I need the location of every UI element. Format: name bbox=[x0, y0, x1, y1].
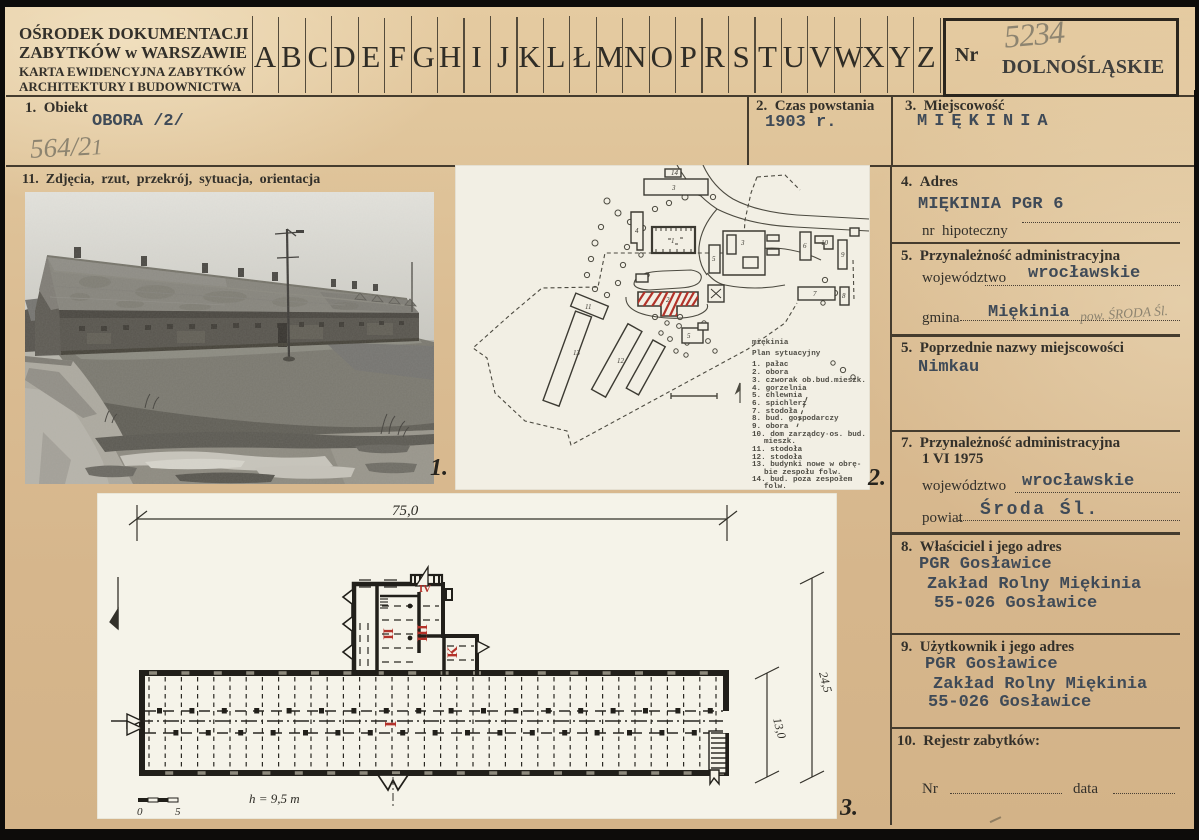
svg-text:0: 0 bbox=[137, 806, 143, 818]
svg-text:8. bud. gospodarczy: 8. bud. gospodarczy bbox=[752, 415, 839, 423]
svg-text:75,0: 75,0 bbox=[392, 503, 419, 519]
svg-text:K: K bbox=[445, 646, 461, 658]
svg-text:5: 5 bbox=[687, 332, 691, 340]
svg-text:miękinia: miękinia bbox=[752, 339, 789, 347]
svg-text:folw.: folw. bbox=[764, 483, 787, 490]
svg-text:7: 7 bbox=[813, 290, 817, 298]
svg-text:6. spichlerz: 6. spichlerz bbox=[752, 400, 807, 408]
svg-text:13. budynki nowe w obrę-: 13. budynki nowe w obrę- bbox=[752, 461, 861, 469]
svg-text:2: 2 bbox=[666, 296, 670, 304]
svg-text:1. pałac: 1. pałac bbox=[752, 361, 789, 369]
svg-text:3: 3 bbox=[671, 184, 676, 192]
svg-text:3: 3 bbox=[740, 239, 745, 247]
svg-text:10: 10 bbox=[821, 239, 829, 247]
svg-text:11. stodoła: 11. stodoła bbox=[752, 446, 803, 454]
svg-text:I: I bbox=[381, 720, 400, 727]
svg-text:14: 14 bbox=[671, 169, 679, 177]
svg-text:5. chlewnia: 5. chlewnia bbox=[752, 392, 803, 400]
svg-text:Plan sytuacyjny: Plan sytuacyjny bbox=[752, 350, 821, 358]
svg-text:II: II bbox=[381, 628, 397, 640]
svg-text:5: 5 bbox=[712, 255, 716, 263]
svg-text:III: III bbox=[415, 624, 431, 642]
svg-text:IV: IV bbox=[419, 583, 431, 595]
svg-text:4: 4 bbox=[635, 227, 639, 235]
svg-text:6: 6 bbox=[803, 242, 807, 250]
svg-text:5: 5 bbox=[175, 806, 181, 818]
svg-text:h = 9,5 m: h = 9,5 m bbox=[249, 791, 300, 806]
svg-text:mieszk.: mieszk. bbox=[764, 438, 796, 446]
svg-text:2. obora: 2. obora bbox=[752, 369, 789, 377]
svg-text:13: 13 bbox=[573, 349, 581, 357]
svg-text:9: 9 bbox=[841, 251, 845, 259]
svg-text:8: 8 bbox=[842, 292, 846, 300]
svg-text:3. czworak ob.bud.mieszk.: 3. czworak ob.bud.mieszk. bbox=[752, 377, 866, 385]
svg-text:1: 1 bbox=[671, 237, 675, 245]
svg-text:12: 12 bbox=[617, 357, 625, 365]
svg-text:9. obora: 9. obora bbox=[752, 423, 789, 431]
svg-text:11: 11 bbox=[585, 303, 591, 311]
